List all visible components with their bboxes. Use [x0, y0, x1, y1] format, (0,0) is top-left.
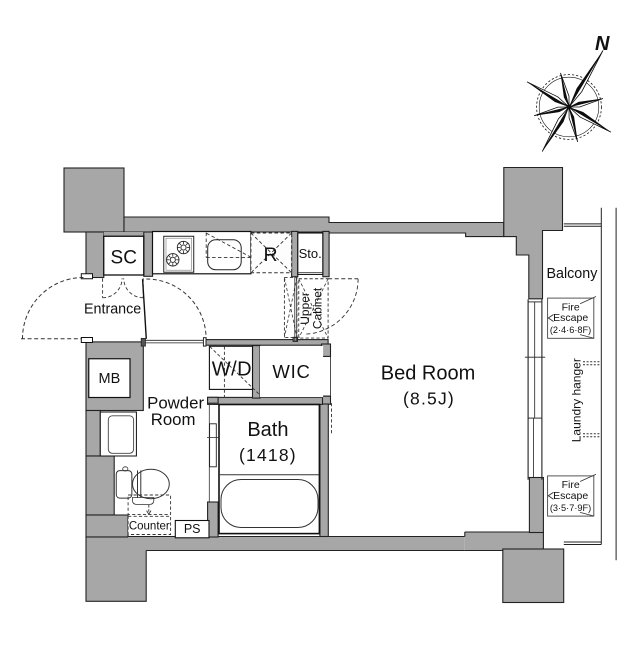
svg-text:Room: Room: [151, 410, 196, 429]
svg-text:(1418): (1418): [239, 445, 297, 465]
svg-text:Sto.: Sto.: [299, 246, 322, 261]
svg-text:Balcony: Balcony: [547, 266, 599, 282]
svg-text:N: N: [595, 33, 610, 55]
svg-text:W/D: W/D: [212, 359, 252, 381]
svg-text:MB: MB: [99, 371, 121, 387]
svg-text:R: R: [263, 244, 277, 266]
svg-text:Cabinet: Cabinet: [310, 287, 324, 329]
svg-text:Escape: Escape: [553, 312, 588, 324]
svg-text:SC: SC: [111, 248, 137, 269]
svg-text:Laundry hanger: Laundry hanger: [570, 358, 584, 442]
svg-text:Bath: Bath: [247, 419, 288, 441]
svg-text:Counter: Counter: [129, 521, 170, 533]
svg-text:(8.5J): (8.5J): [403, 388, 455, 408]
svg-text:Entrance: Entrance: [84, 302, 141, 318]
svg-text:(2·4·6·8F): (2·4·6·8F): [550, 325, 591, 335]
svg-text:Escape: Escape: [553, 490, 588, 502]
svg-text:Bed Room: Bed Room: [381, 363, 476, 385]
svg-text:(3·5·7·9F): (3·5·7·9F): [550, 503, 591, 513]
svg-text:WIC: WIC: [272, 361, 310, 382]
svg-text:PS: PS: [184, 522, 201, 536]
